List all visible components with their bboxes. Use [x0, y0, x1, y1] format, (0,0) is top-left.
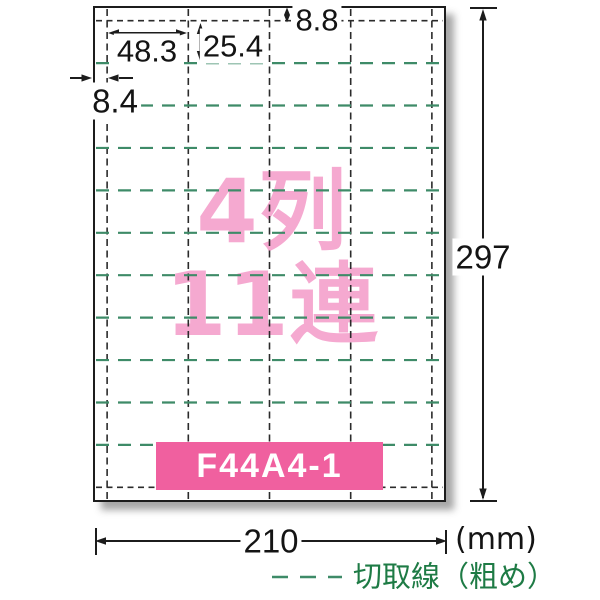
legend-cut-line-label: 切取線（粗め）	[353, 563, 556, 592]
arrowhead-left-icon	[95, 537, 106, 544]
headline-rows: 11連	[165, 261, 378, 349]
dim-left-margin: 8.4	[89, 83, 141, 120]
dim-sheet-height: 297	[452, 239, 513, 276]
dim-sheet-width: 210	[240, 523, 301, 560]
arrowhead-up-icon	[479, 9, 486, 21]
headline-columns: 4列	[196, 168, 347, 256]
arrowhead-down-icon	[479, 489, 486, 501]
product-code-box: F44A4-1	[156, 442, 383, 490]
dim-label-height: 25.4	[200, 29, 266, 64]
unit-label: (mm)	[455, 525, 537, 555]
dim-label-width: 48.3	[114, 34, 180, 69]
arrowhead-right-icon	[82, 74, 93, 81]
dim-top-margin: 8.8	[292, 3, 341, 38]
product-code-label: F44A4-1	[196, 447, 342, 486]
arrowhead-right-icon	[436, 537, 447, 544]
label-sheet-diagram: 4列 11連	[0, 0, 600, 600]
